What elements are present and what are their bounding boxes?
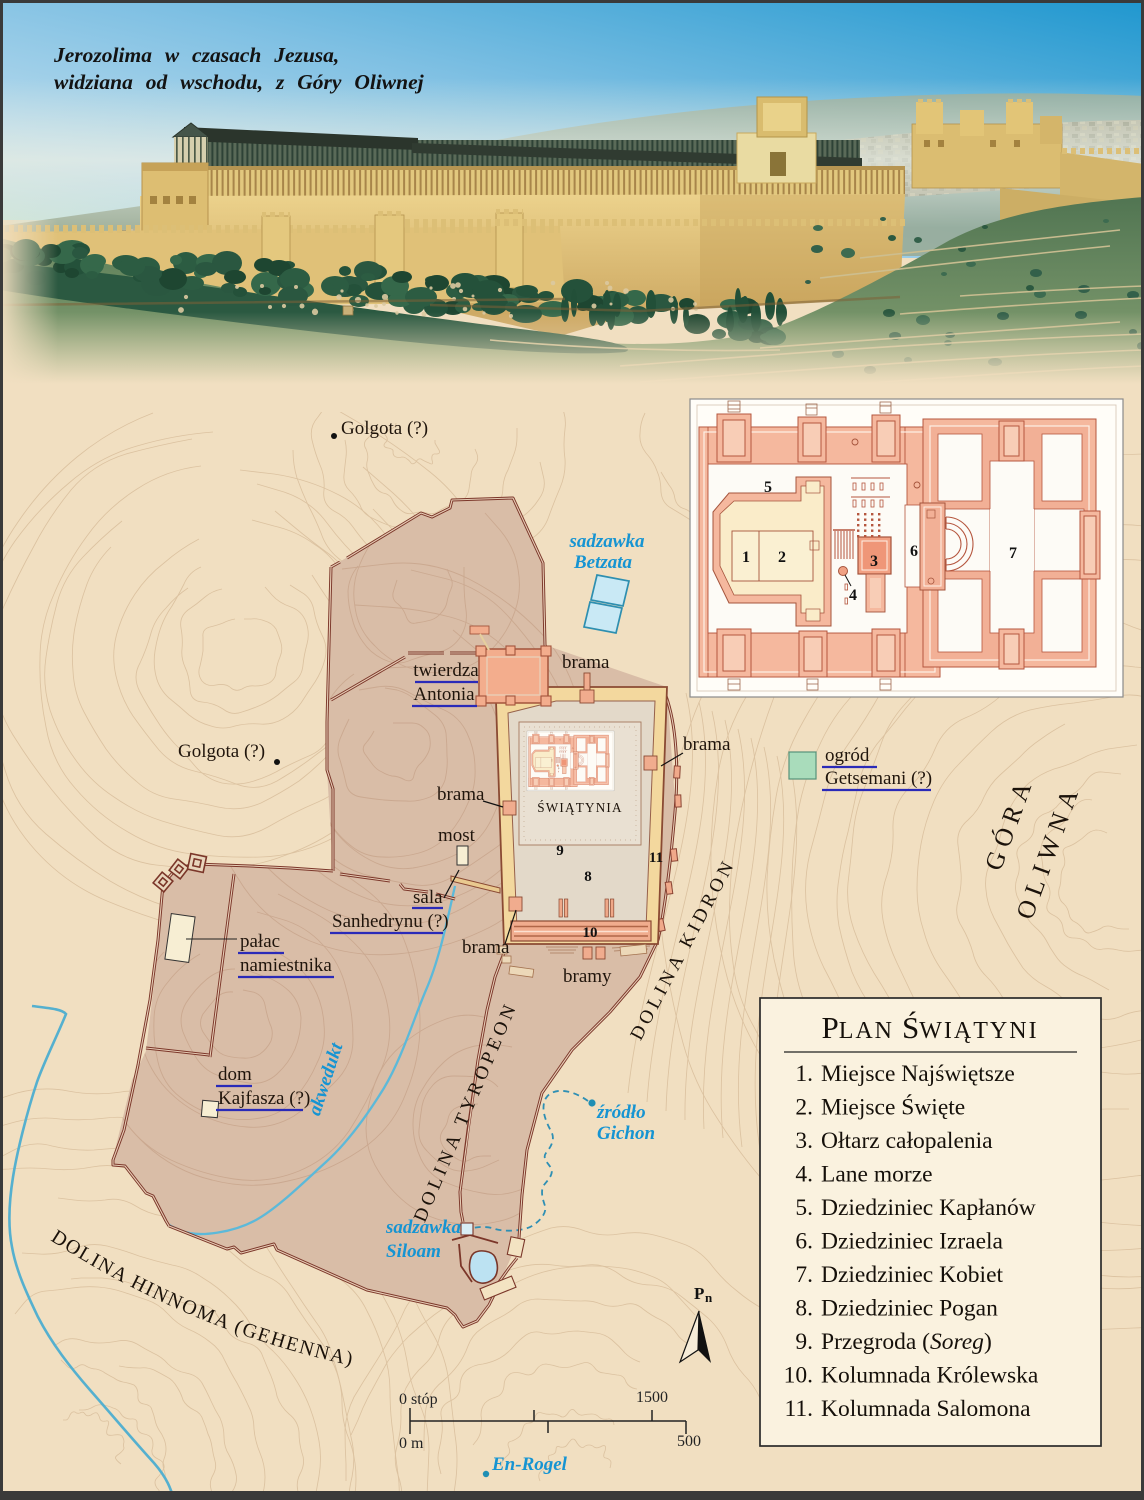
svg-text:bramy: bramy — [563, 966, 612, 987]
svg-text:11.: 11. — [784, 1396, 813, 1422]
svg-text:Antonia: Antonia — [413, 684, 475, 705]
svg-text:n: n — [705, 1290, 713, 1305]
svg-text:4: 4 — [849, 587, 857, 604]
svg-text:8: 8 — [584, 869, 592, 885]
svg-text:źródło: źródło — [596, 1102, 646, 1123]
svg-text:twierdza: twierdza — [413, 660, 479, 681]
svg-text:Sanhedrynu (?): Sanhedrynu (?) — [332, 911, 449, 932]
svg-text:Siloam: Siloam — [386, 1241, 441, 1262]
svg-text:Dziedziniec Izraela: Dziedziniec Izraela — [821, 1229, 1004, 1255]
svg-text:7: 7 — [1009, 545, 1017, 562]
svg-text:Gichon: Gichon — [597, 1123, 655, 1144]
svg-text:Lane morze: Lane morze — [821, 1162, 933, 1188]
svg-text:0 m: 0 m — [399, 1435, 424, 1452]
svg-text:3.: 3. — [795, 1128, 813, 1154]
svg-text:Kolumnada Salomona: Kolumnada Salomona — [821, 1396, 1031, 1422]
svg-text:3: 3 — [870, 553, 878, 570]
svg-text:dom: dom — [218, 1064, 252, 1085]
svg-text:brama: brama — [562, 652, 610, 673]
svg-text:Golgota (?): Golgota (?) — [178, 741, 265, 762]
svg-text:Dziedziniec Kobiet: Dziedziniec Kobiet — [821, 1262, 1004, 1288]
svg-text:8.: 8. — [795, 1296, 813, 1322]
svg-text:4.: 4. — [795, 1162, 813, 1188]
svg-text:2: 2 — [778, 549, 786, 566]
svg-text:Dziedziniec Pogan: Dziedziniec Pogan — [821, 1296, 998, 1322]
svg-text:brama: brama — [437, 784, 485, 805]
svg-text:Getsemani (?): Getsemani (?) — [825, 768, 932, 789]
svg-text:10.: 10. — [784, 1363, 813, 1389]
svg-text:sadzawka: sadzawka — [569, 531, 645, 552]
svg-text:Kolumnada Królewska: Kolumnada Królewska — [821, 1363, 1039, 1389]
svg-text:Jerozolima w czasach Jezusa,: Jerozolima w czasach Jezusa, — [53, 43, 339, 67]
svg-text:Kajfasza (?): Kajfasza (?) — [218, 1088, 310, 1109]
svg-text:Miejsce Święte: Miejsce Święte — [821, 1094, 965, 1121]
svg-text:ŚWIĄTYNIA: ŚWIĄTYNIA — [537, 800, 623, 815]
svg-text:1.: 1. — [795, 1061, 813, 1087]
svg-text:widziana od wschodu, z Góry Ol: widziana od wschodu, z Góry Oliwnej — [54, 70, 425, 94]
svg-text:Ołtarz całopalenia: Ołtarz całopalenia — [821, 1128, 993, 1154]
svg-text:7.: 7. — [795, 1262, 813, 1288]
svg-text:2.: 2. — [795, 1095, 813, 1121]
svg-text:5: 5 — [764, 479, 772, 496]
svg-text:most: most — [438, 825, 476, 846]
svg-text:9.: 9. — [795, 1329, 813, 1355]
svg-text:6.: 6. — [795, 1229, 813, 1255]
svg-text:pałac: pałac — [240, 931, 280, 952]
svg-text:1: 1 — [742, 549, 750, 566]
svg-text:5.: 5. — [795, 1195, 813, 1221]
svg-text:sala: sala — [413, 887, 443, 908]
svg-text:6: 6 — [910, 543, 918, 560]
svg-text:500: 500 — [677, 1433, 701, 1450]
svg-text:Betzata: Betzata — [573, 552, 633, 573]
svg-text:En-Rogel: En-Rogel — [491, 1454, 568, 1475]
svg-text:brama: brama — [462, 937, 510, 958]
svg-text:Golgota (?): Golgota (?) — [341, 418, 428, 439]
svg-text:Przegroda (Soreg): Przegroda (Soreg) — [821, 1329, 992, 1355]
svg-text:0 stóp: 0 stóp — [399, 1391, 438, 1408]
svg-text:11: 11 — [649, 850, 663, 866]
svg-text:Dziedziniec Kapłanów: Dziedziniec Kapłanów — [821, 1195, 1036, 1221]
svg-text:10: 10 — [583, 925, 598, 941]
svg-text:ogród: ogród — [825, 745, 870, 766]
svg-text:namiestnika: namiestnika — [240, 955, 332, 976]
svg-text:9: 9 — [556, 843, 564, 859]
svg-text:1500: 1500 — [636, 1389, 668, 1406]
svg-text:P: P — [694, 1284, 704, 1303]
svg-text:Miejsce Najświętsze: Miejsce Najświętsze — [821, 1061, 1015, 1087]
svg-text:brama: brama — [683, 734, 731, 755]
